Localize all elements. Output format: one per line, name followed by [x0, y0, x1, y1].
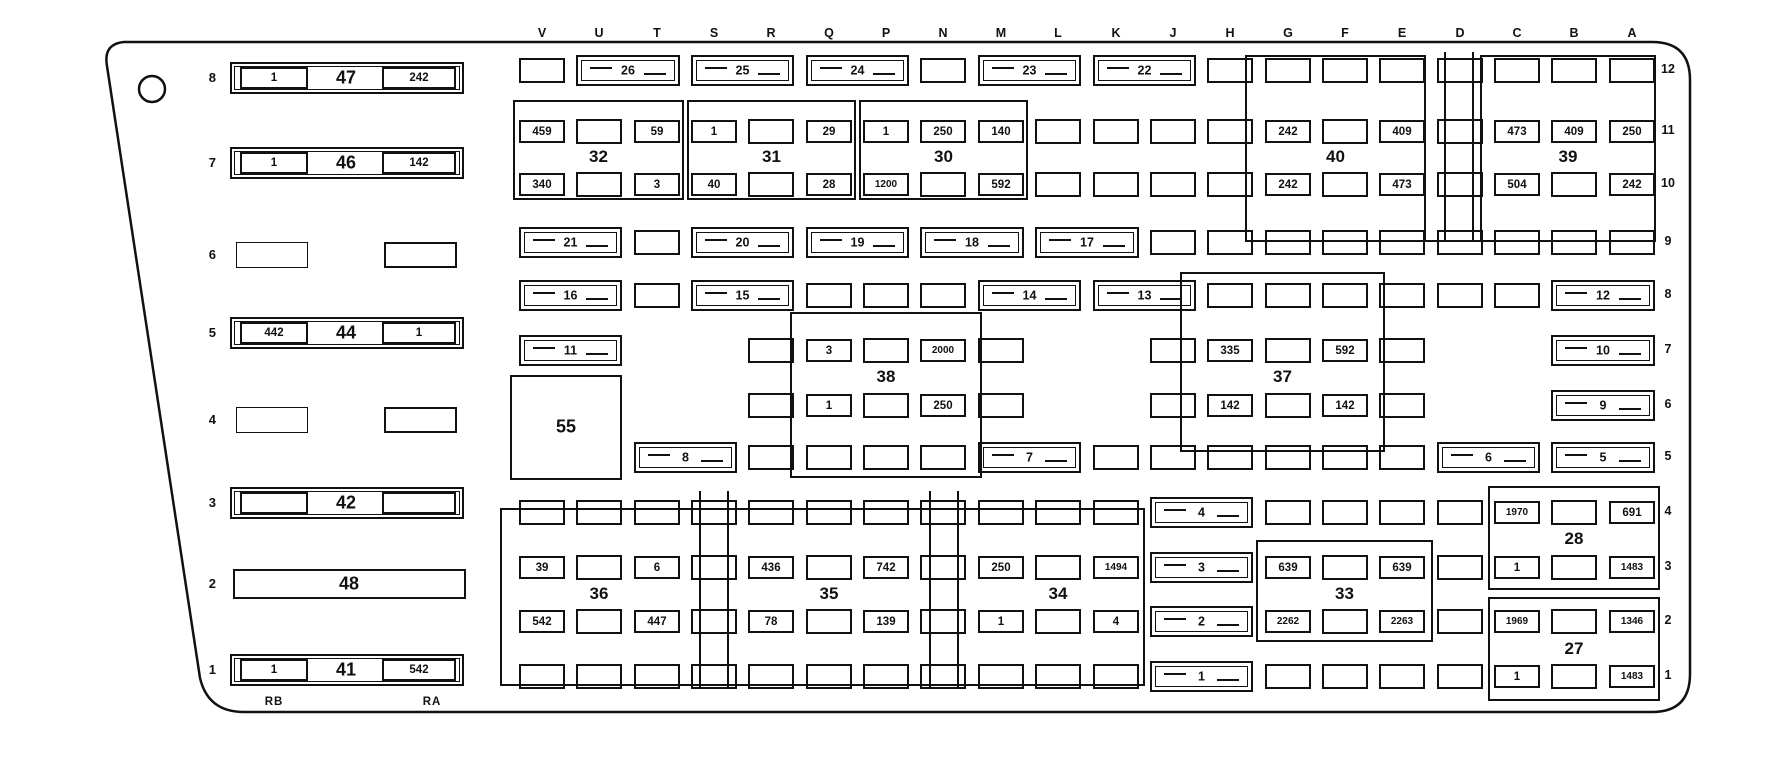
- amp-box-c11: 473: [1494, 120, 1540, 143]
- relay-31-label: 31: [762, 147, 781, 167]
- amp-box-s11: 1: [691, 120, 737, 143]
- slot-b3: [1551, 555, 1597, 580]
- slot-q5: [806, 445, 852, 470]
- slot-e8: [1379, 283, 1425, 308]
- row-label-7: 7: [1665, 342, 1672, 356]
- amp-box-m11: 140: [978, 120, 1024, 143]
- relay-34-label: 34: [1049, 584, 1068, 604]
- slot-k1: [1093, 664, 1139, 689]
- left-row-label-4: 4: [186, 412, 216, 427]
- amp-box-g10: 242: [1265, 173, 1311, 196]
- fuse-16-body: 16: [524, 285, 617, 306]
- left-row-label-8: 8: [186, 70, 216, 85]
- fuse-21-body: 21: [524, 232, 617, 253]
- slot-a9: [1609, 230, 1655, 255]
- slot-j11: [1150, 119, 1196, 144]
- slot-f9: [1322, 230, 1368, 255]
- amp-box-v3: 39: [519, 556, 565, 579]
- slot-n8: [920, 283, 966, 308]
- left-row-label-6: 6: [186, 247, 216, 262]
- fuse-9: 9: [1551, 390, 1655, 421]
- slot-s2: [691, 609, 737, 634]
- amp-box-k2: 4: [1093, 610, 1139, 633]
- slot-r5: [748, 445, 794, 470]
- fuse-6-body: 6: [1442, 447, 1535, 468]
- column-letter-v: V: [538, 26, 546, 40]
- slot-p5: [863, 445, 909, 470]
- fuse-26-body: 26: [581, 60, 675, 81]
- fuse-17: 17: [1035, 227, 1139, 258]
- fuse-22-label: 22: [1099, 63, 1190, 77]
- amp-box-k3: 1494: [1093, 556, 1139, 579]
- left-amp-box: [240, 492, 308, 514]
- fuse-11-body: 11: [524, 340, 617, 361]
- left-amp-box: 1: [240, 67, 308, 89]
- slot-h8: [1207, 283, 1253, 308]
- left-amp-box: 142: [382, 152, 456, 174]
- relay-36-label: 36: [590, 584, 609, 604]
- left-block-47-label: 47: [336, 68, 356, 89]
- left-block-44-label: 44: [336, 323, 356, 344]
- slot-g7: [1265, 338, 1311, 363]
- slot-g6: [1265, 393, 1311, 418]
- column-letter-n: N: [938, 26, 947, 40]
- amp-box-n11: 250: [920, 120, 966, 143]
- amp-box-e10: 473: [1379, 173, 1425, 196]
- fuse-14-label: 14: [984, 288, 1075, 302]
- amp-box-p11: 1: [863, 120, 909, 143]
- fuse-11: 11: [519, 335, 622, 366]
- fuse-23-label: 23: [984, 63, 1075, 77]
- fuse-18: 18: [920, 227, 1024, 258]
- fuse-3-body: 3: [1155, 557, 1248, 578]
- slot-s4: [691, 500, 737, 525]
- slot-h10: [1207, 172, 1253, 197]
- slot-u3: [576, 555, 622, 580]
- column-letter-f: F: [1341, 26, 1349, 40]
- slot-h11: [1207, 119, 1253, 144]
- fuse-17-label: 17: [1041, 235, 1133, 249]
- row-label-10: 10: [1661, 176, 1675, 190]
- relay-39-label: 39: [1559, 147, 1578, 167]
- column-letter-r: R: [766, 26, 775, 40]
- amp-box-v11: 459: [519, 120, 565, 143]
- amp-box-c3: 1: [1494, 556, 1540, 579]
- left-block-48-label: 48: [339, 574, 359, 595]
- column-letter-t: T: [653, 26, 661, 40]
- fuse-2-body: 2: [1155, 611, 1248, 632]
- mounting-hole-icon: [139, 76, 165, 102]
- slot-u1: [576, 664, 622, 689]
- slot-h5: [1207, 445, 1253, 470]
- amp-box-s10: 40: [691, 173, 737, 196]
- amp-box-p2: 139: [863, 610, 909, 633]
- amp-box-a4: 691: [1609, 501, 1655, 524]
- slot-u10: [576, 172, 622, 197]
- amp-box-n6: 250: [920, 394, 966, 417]
- fuse-6: 6: [1437, 442, 1540, 473]
- fuse-17-body: 17: [1040, 232, 1134, 253]
- fuse-19: 19: [806, 227, 909, 258]
- fuse-7-body: 7: [983, 447, 1076, 468]
- amp-box-f7: 592: [1322, 339, 1368, 362]
- amp-box-t10: 3: [634, 173, 680, 196]
- amp-box-p3: 742: [863, 556, 909, 579]
- slot-d4: [1437, 500, 1483, 525]
- relay-33-label: 33: [1335, 584, 1354, 604]
- slot-h12: [1207, 58, 1253, 83]
- slot-j9: [1150, 230, 1196, 255]
- amp-box-g3: 639: [1265, 556, 1311, 579]
- slot-d8: [1437, 283, 1483, 308]
- fuse-14: 14: [978, 280, 1081, 311]
- slot-g8: [1265, 283, 1311, 308]
- slot-f2: [1322, 609, 1368, 634]
- relay-32-label: 32: [589, 147, 608, 167]
- relay-35-label: 35: [820, 584, 839, 604]
- slot-n2: [920, 609, 966, 634]
- slot-e9: [1379, 230, 1425, 255]
- fuse-25-label: 25: [697, 63, 788, 77]
- left-empty-box: [236, 242, 308, 268]
- column-letter-l: L: [1054, 26, 1062, 40]
- slot-k4: [1093, 500, 1139, 525]
- fuse-2: 2: [1150, 606, 1253, 637]
- terminal-label-rb: RB: [265, 696, 284, 708]
- amp-box-t11: 59: [634, 120, 680, 143]
- slot-e5: [1379, 445, 1425, 470]
- fuse-15-body: 15: [696, 285, 789, 306]
- amp-box-t3: 6: [634, 556, 680, 579]
- slot-f4: [1322, 500, 1368, 525]
- left-row-label-5: 5: [186, 325, 216, 340]
- fuse-10: 10: [1551, 335, 1655, 366]
- slot-r7: [748, 338, 794, 363]
- amp-box-h7: 335: [1207, 339, 1253, 362]
- slot-b2: [1551, 609, 1597, 634]
- row-label-11: 11: [1661, 123, 1674, 137]
- slot-t8: [634, 283, 680, 308]
- slot-r6: [748, 393, 794, 418]
- relay-40-label: 40: [1326, 147, 1345, 167]
- left-amp-box: 542: [382, 659, 456, 681]
- fuse-26: 26: [576, 55, 680, 86]
- fuse-25: 25: [691, 55, 794, 86]
- slot-l2: [1035, 609, 1081, 634]
- left-amp-box: 1: [382, 322, 456, 344]
- slot-e12: [1379, 58, 1425, 83]
- column-letter-g: G: [1283, 26, 1293, 40]
- amp-box-q10: 28: [806, 173, 852, 196]
- fuse-5-label: 5: [1557, 450, 1649, 464]
- column-letter-s: S: [710, 26, 718, 40]
- slot-e6: [1379, 393, 1425, 418]
- slot-r11: [748, 119, 794, 144]
- slot-l10: [1035, 172, 1081, 197]
- slot-t1: [634, 664, 680, 689]
- amp-box-v10: 340: [519, 173, 565, 196]
- slot-f10: [1322, 172, 1368, 197]
- row-label-8: 8: [1665, 287, 1672, 301]
- left-block-41-label: 41: [336, 660, 356, 681]
- slot-u2: [576, 609, 622, 634]
- fuse-1-body: 1: [1155, 666, 1248, 687]
- fuse-4-body: 4: [1155, 502, 1248, 523]
- slot-g1: [1265, 664, 1311, 689]
- left-amp-box: [382, 492, 456, 514]
- fuse-4-label: 4: [1156, 505, 1247, 519]
- fuse-22: 22: [1093, 55, 1196, 86]
- fuse-9-body: 9: [1556, 395, 1650, 416]
- fuse-2-label: 2: [1156, 614, 1247, 628]
- slot-p7: [863, 338, 909, 363]
- fuse-21: 21: [519, 227, 622, 258]
- slot-g5: [1265, 445, 1311, 470]
- relay-38-label: 38: [877, 367, 896, 387]
- fuse-13: 13: [1093, 280, 1196, 311]
- fuse-10-body: 10: [1556, 340, 1650, 361]
- slot-f12: [1322, 58, 1368, 83]
- slot-v12: [519, 58, 565, 83]
- fuse-22-body: 22: [1098, 60, 1191, 81]
- fuse-4: 4: [1150, 497, 1253, 528]
- slot-s3: [691, 555, 737, 580]
- amp-box-c4: 1970: [1494, 501, 1540, 524]
- amp-box-c2: 1969: [1494, 610, 1540, 633]
- slot-n12: [920, 58, 966, 83]
- row-label-3: 3: [1665, 559, 1672, 573]
- column-letter-b: B: [1569, 26, 1578, 40]
- column-letter-c: C: [1512, 26, 1521, 40]
- left-empty-box: [384, 407, 457, 433]
- fuse-box-diagram: 2728303132333738394055343536VUTSRQPNMLKJ…: [0, 0, 1768, 757]
- row-label-4: 4: [1665, 504, 1672, 518]
- slot-g9: [1265, 230, 1311, 255]
- row-label-1: 1: [1665, 668, 1672, 682]
- amp-box-q6: 1: [806, 394, 852, 417]
- column-letter-k: K: [1111, 26, 1120, 40]
- fuse-9-label: 9: [1557, 398, 1649, 412]
- left-row-label-2: 2: [186, 576, 216, 591]
- slot-d12: [1437, 58, 1483, 83]
- slot-d1: [1437, 664, 1483, 689]
- column-letter-p: P: [882, 26, 890, 40]
- row-label-2: 2: [1665, 613, 1672, 627]
- fuse-10-label: 10: [1557, 343, 1649, 357]
- amp-box-g2: 2262: [1265, 610, 1311, 633]
- fuse-24-label: 24: [812, 63, 903, 77]
- slot-n3: [920, 555, 966, 580]
- slot-d10: [1437, 172, 1483, 197]
- relay-28-label: 28: [1565, 529, 1584, 549]
- fuse-15-label: 15: [697, 288, 788, 302]
- amp-box-f6: 142: [1322, 394, 1368, 417]
- slot-q2: [806, 609, 852, 634]
- amp-box-m10: 592: [978, 173, 1024, 196]
- fuse-1: 1: [1150, 661, 1253, 692]
- slot-d3: [1437, 555, 1483, 580]
- slot-b12: [1551, 58, 1597, 83]
- slot-k5: [1093, 445, 1139, 470]
- amp-box-e3: 639: [1379, 556, 1425, 579]
- fuse-7: 7: [978, 442, 1081, 473]
- fuse-12-label: 12: [1557, 288, 1649, 302]
- slot-a12: [1609, 58, 1655, 83]
- fuse-18-label: 18: [926, 235, 1018, 249]
- fuse-8: 8: [634, 442, 737, 473]
- left-amp-box: 442: [240, 322, 308, 344]
- fuse-7-label: 7: [984, 450, 1075, 464]
- amp-box-a1: 1483: [1609, 665, 1655, 688]
- fuse-16: 16: [519, 280, 622, 311]
- slot-j5: [1150, 445, 1196, 470]
- slot-j6: [1150, 393, 1196, 418]
- column-letter-j: J: [1170, 26, 1177, 40]
- left-row-label-3: 3: [186, 495, 216, 510]
- fuse-21-label: 21: [525, 235, 616, 249]
- slot-p6: [863, 393, 909, 418]
- amp-box-h6: 142: [1207, 394, 1253, 417]
- left-row-label-7: 7: [186, 155, 216, 170]
- relay-55-label: 55: [556, 417, 576, 438]
- slot-k11: [1093, 119, 1139, 144]
- fuse-24: 24: [806, 55, 909, 86]
- slot-d9: [1437, 230, 1483, 255]
- slot-n1: [920, 664, 966, 689]
- slot-e7: [1379, 338, 1425, 363]
- slot-m7: [978, 338, 1024, 363]
- fuse-6-label: 6: [1443, 450, 1534, 464]
- slot-f11: [1322, 119, 1368, 144]
- column-letter-e: E: [1398, 26, 1406, 40]
- fuse-20: 20: [691, 227, 794, 258]
- column-letter-a: A: [1627, 26, 1636, 40]
- amp-box-t2: 447: [634, 610, 680, 633]
- fuse-1-label: 1: [1156, 669, 1247, 683]
- left-block-42-label: 42: [336, 493, 356, 514]
- slot-s1: [691, 664, 737, 689]
- relay-30-label: 30: [934, 147, 953, 167]
- left-empty-box: [384, 242, 457, 268]
- slot-b10: [1551, 172, 1597, 197]
- amp-box-q11: 29: [806, 120, 852, 143]
- amp-box-g11: 242: [1265, 120, 1311, 143]
- left-empty-box: [236, 407, 308, 433]
- fuse-19-label: 19: [812, 235, 903, 249]
- slot-l11: [1035, 119, 1081, 144]
- slot-e4: [1379, 500, 1425, 525]
- slot-q4: [806, 500, 852, 525]
- fuse-12: 12: [1551, 280, 1655, 311]
- fuse-3-label: 3: [1156, 560, 1247, 574]
- row-label-5: 5: [1665, 449, 1672, 463]
- terminal-label-ra: RA: [423, 696, 442, 708]
- slot-p8: [863, 283, 909, 308]
- fuse-3: 3: [1150, 552, 1253, 583]
- column-letter-m: M: [996, 26, 1006, 40]
- fuse-8-body: 8: [639, 447, 732, 468]
- slot-e1: [1379, 664, 1425, 689]
- slot-m1: [978, 664, 1024, 689]
- column-letter-h: H: [1225, 26, 1234, 40]
- slot-r10: [748, 172, 794, 197]
- slot-u4: [576, 500, 622, 525]
- fuse-18-body: 18: [925, 232, 1019, 253]
- amp-box-n7: 2000: [920, 339, 966, 362]
- slot-k10: [1093, 172, 1139, 197]
- slot-q3: [806, 555, 852, 580]
- amp-box-r2: 78: [748, 610, 794, 633]
- slot-p4: [863, 500, 909, 525]
- fuse-25-body: 25: [696, 60, 789, 81]
- slot-f8: [1322, 283, 1368, 308]
- slot-j7: [1150, 338, 1196, 363]
- column-letter-q: Q: [824, 26, 834, 40]
- slot-b9: [1551, 230, 1597, 255]
- fuse-26-label: 26: [582, 63, 674, 77]
- amp-box-c1: 1: [1494, 665, 1540, 688]
- left-amp-box: 1: [240, 659, 308, 681]
- slot-t9: [634, 230, 680, 255]
- slot-q8: [806, 283, 852, 308]
- column-letter-d: D: [1455, 26, 1464, 40]
- slot-m6: [978, 393, 1024, 418]
- fuse-19-body: 19: [811, 232, 904, 253]
- relay-27-label: 27: [1565, 639, 1584, 659]
- slot-v4: [519, 500, 565, 525]
- amp-box-a2: 1346: [1609, 610, 1655, 633]
- fuse-13-body: 13: [1098, 285, 1191, 306]
- amp-box-a10: 242: [1609, 173, 1655, 196]
- slot-d2: [1437, 609, 1483, 634]
- amp-box-r3: 436: [748, 556, 794, 579]
- slot-b4: [1551, 500, 1597, 525]
- slot-c9: [1494, 230, 1540, 255]
- amp-box-b11: 409: [1551, 120, 1597, 143]
- amp-box-q7: 3: [806, 339, 852, 362]
- slot-f1: [1322, 664, 1368, 689]
- left-amp-box: 242: [382, 67, 456, 89]
- slot-q1: [806, 664, 852, 689]
- slot-c12: [1494, 58, 1540, 83]
- fuse-24-body: 24: [811, 60, 904, 81]
- fuse-20-body: 20: [696, 232, 789, 253]
- amp-box-a3: 1483: [1609, 556, 1655, 579]
- slot-m4: [978, 500, 1024, 525]
- slot-g12: [1265, 58, 1311, 83]
- fuse-13-label: 13: [1099, 288, 1190, 302]
- slot-l1: [1035, 664, 1081, 689]
- column-letter-u: U: [594, 26, 603, 40]
- slot-b1: [1551, 664, 1597, 689]
- fuse-11-label: 11: [525, 343, 616, 357]
- relay-37-label: 37: [1273, 367, 1292, 387]
- fuse-16-label: 16: [525, 288, 616, 302]
- left-row-label-1: 1: [186, 662, 216, 677]
- slot-v1: [519, 664, 565, 689]
- fuse-12-body: 12: [1556, 285, 1650, 306]
- amp-box-a11: 250: [1609, 120, 1655, 143]
- slot-p1: [863, 664, 909, 689]
- slot-n4: [920, 500, 966, 525]
- slot-n10: [920, 172, 966, 197]
- slot-l3: [1035, 555, 1081, 580]
- slot-g4: [1265, 500, 1311, 525]
- slot-h9: [1207, 230, 1253, 255]
- row-label-9: 9: [1665, 234, 1672, 248]
- fuse-5: 5: [1551, 442, 1655, 473]
- slot-j10: [1150, 172, 1196, 197]
